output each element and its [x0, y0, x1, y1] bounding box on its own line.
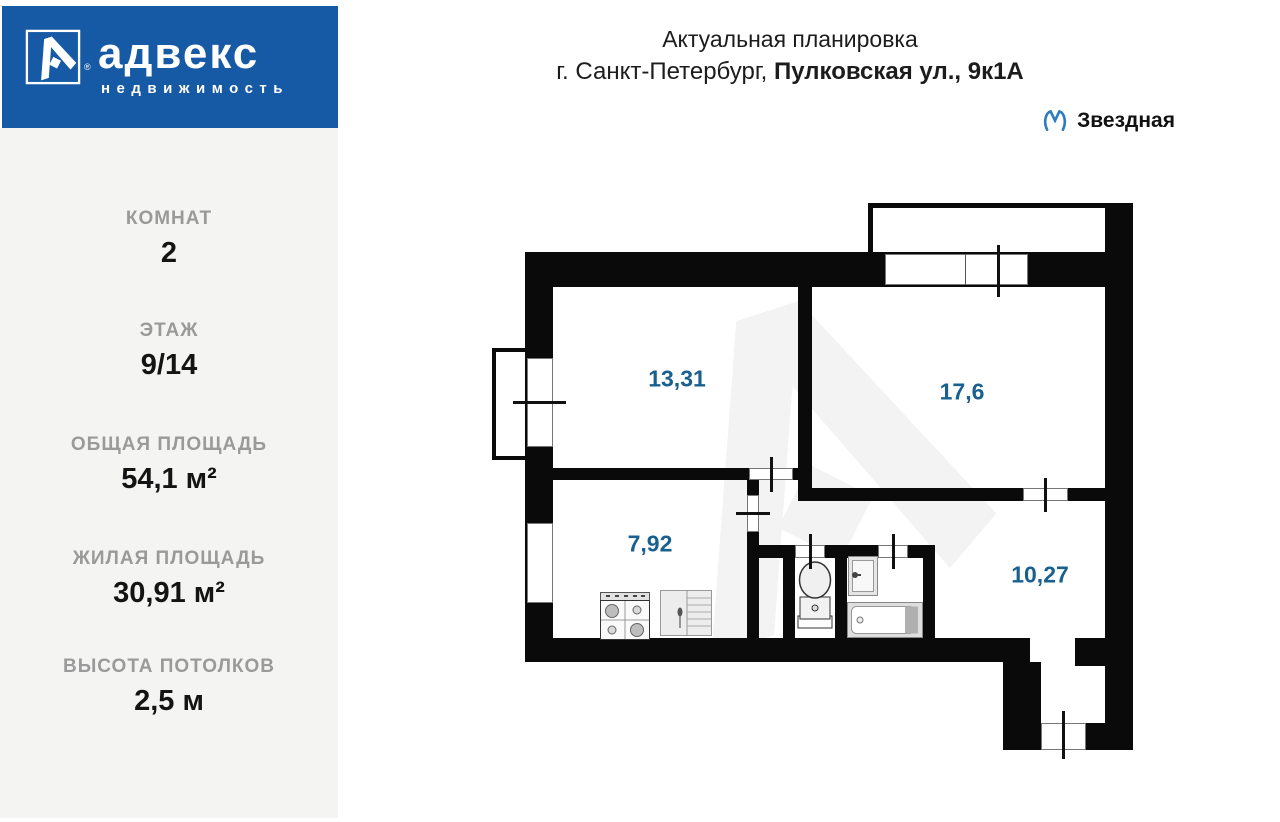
stat-living-area: ЖИЛАЯ ПЛОЩАДЬ 30,91 м² — [0, 548, 338, 610]
stat-total-area: ОБЩАЯ ПЛОЩАДЬ 54,1 м² — [0, 434, 338, 496]
wall-bottom — [525, 638, 1030, 662]
stat-label: ОБЩАЯ ПЛОЩАДЬ — [0, 434, 338, 456]
balcony-window — [885, 254, 1028, 285]
stove-icon — [600, 592, 650, 640]
wall-bath-right — [923, 558, 935, 638]
advex-logo-icon — [24, 28, 82, 86]
vestibule-passage — [1030, 638, 1075, 662]
wall-between-rooms — [798, 287, 812, 501]
balcony-window-tick — [997, 245, 1000, 297]
kitchen-area-label: 7,92 — [628, 531, 673, 558]
wall-top — [525, 252, 1133, 287]
stat-label: ВЫСОТА ПОТОЛКОВ — [0, 656, 338, 678]
stat-rooms: КОМНАТ 2 — [0, 208, 338, 270]
bay-window-tick — [513, 401, 566, 404]
wall-room2-bottom-a — [812, 488, 1023, 501]
brand-subtitle: недвижимость — [101, 80, 331, 97]
bay-window-outline — [492, 348, 529, 460]
brand-registered-mark: ® — [84, 62, 91, 72]
wc-door-tick — [809, 534, 812, 569]
stat-value: 30,91 м² — [0, 577, 338, 610]
stat-label: ЖИЛАЯ ПЛОЩАДЬ — [0, 548, 338, 570]
wall-vestibule-left — [1003, 662, 1041, 750]
floor-plan: 13,31 17,6 7,92 10,27 — [478, 196, 1138, 766]
stat-ceiling-height: ВЫСОТА ПОТОЛКОВ 2,5 м — [0, 656, 338, 718]
stat-floor: ЭТАЖ 9/14 — [0, 320, 338, 382]
wall-wc-bath-top-c — [908, 545, 935, 558]
wall-wc-bath-top-a — [759, 545, 795, 558]
stat-value: 54,1 м² — [0, 463, 338, 496]
brand-logo-box: ® адвекс недвижимость — [2, 6, 338, 128]
bath-door-tick — [892, 534, 895, 569]
plan-title: Актуальная планировка — [440, 26, 1140, 53]
room2-door-tick — [1044, 478, 1047, 512]
page: { "brand": { "name": "адвекс", "subtitle… — [0, 0, 1280, 822]
wall-room1-bottom — [553, 468, 749, 480]
bathtub-icon — [847, 602, 923, 638]
metro-icon — [1041, 107, 1069, 135]
stat-label: КОМНАТ — [0, 208, 338, 230]
wall-room1-bottom-stub — [793, 468, 798, 480]
wall-right — [1105, 203, 1133, 750]
stat-label: ЭТАЖ — [0, 320, 338, 342]
metro-row: Звездная — [990, 104, 1175, 138]
hallway-area-label: 10,27 — [1011, 562, 1069, 589]
room2-area-label: 17,6 — [940, 379, 985, 406]
stats-sidebar: КОМНАТ 2 ЭТАЖ 9/14 ОБЩАЯ ПЛОЩАДЬ 54,1 м²… — [0, 128, 338, 818]
toilet-icon — [797, 560, 833, 630]
room1-area-label: 13,31 — [648, 366, 706, 393]
wall-vestibule-bottom — [1086, 723, 1133, 750]
sink-icon — [848, 556, 878, 596]
address-street: Пулковская ул., 9к1А — [774, 58, 1024, 85]
stat-value: 2 — [0, 237, 338, 270]
brand-name: адвекс — [98, 32, 328, 76]
cabinet-icon — [660, 590, 712, 636]
plan-address: г. Санкт-Петербург, Пулковская ул., 9к1А — [440, 58, 1140, 86]
stat-value: 9/14 — [0, 349, 338, 382]
wall-wc-left — [783, 558, 795, 638]
address-city: г. Санкт-Петербург, — [556, 58, 774, 85]
metro-station-name: Звездная — [1077, 109, 1175, 133]
balcony-outline — [868, 203, 1133, 252]
room1-door-tick — [770, 457, 773, 492]
kitchen-window — [527, 523, 553, 603]
stat-value: 2,5 м — [0, 685, 338, 718]
entrance-door-tick — [1062, 711, 1065, 759]
balcony-window-divider — [965, 254, 966, 285]
plan-title-block: Актуальная планировка г. Санкт-Петербург… — [440, 26, 1140, 86]
wall-vestibule-block — [1075, 638, 1105, 666]
kitchen-door-tick — [736, 512, 770, 515]
wall-room2-bottom-b — [1068, 488, 1105, 501]
wall-wc-right — [835, 558, 847, 638]
